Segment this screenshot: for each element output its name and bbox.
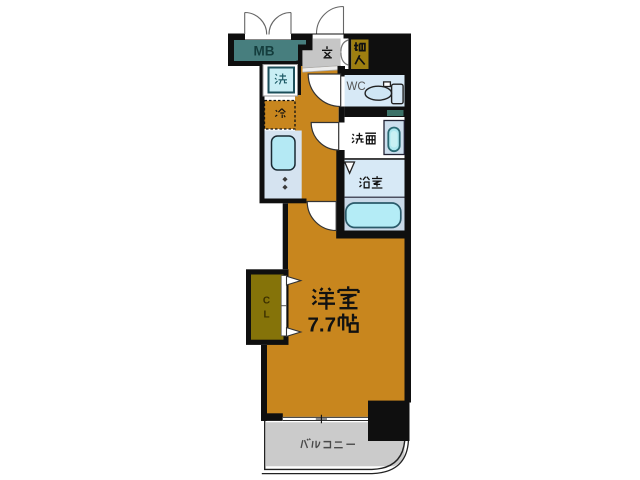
svg-text:C: C <box>263 296 270 307</box>
svg-text:7.7: 7.7 <box>308 314 337 337</box>
svg-text:WC: WC <box>347 81 366 93</box>
svg-text:L: L <box>263 310 269 321</box>
svg-text:MB: MB <box>254 44 275 59</box>
